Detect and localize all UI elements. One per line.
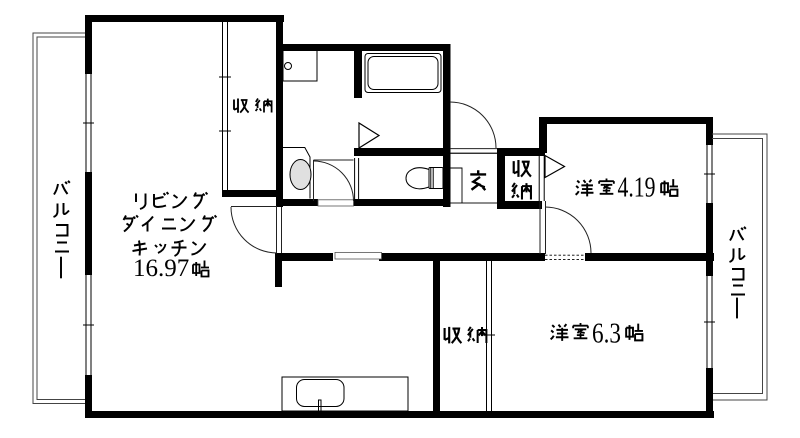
svg-text:6.3: 6.3 [592, 319, 621, 350]
svg-text:4.19: 4.19 [618, 173, 656, 204]
svg-text:16.97: 16.97 [133, 255, 189, 282]
